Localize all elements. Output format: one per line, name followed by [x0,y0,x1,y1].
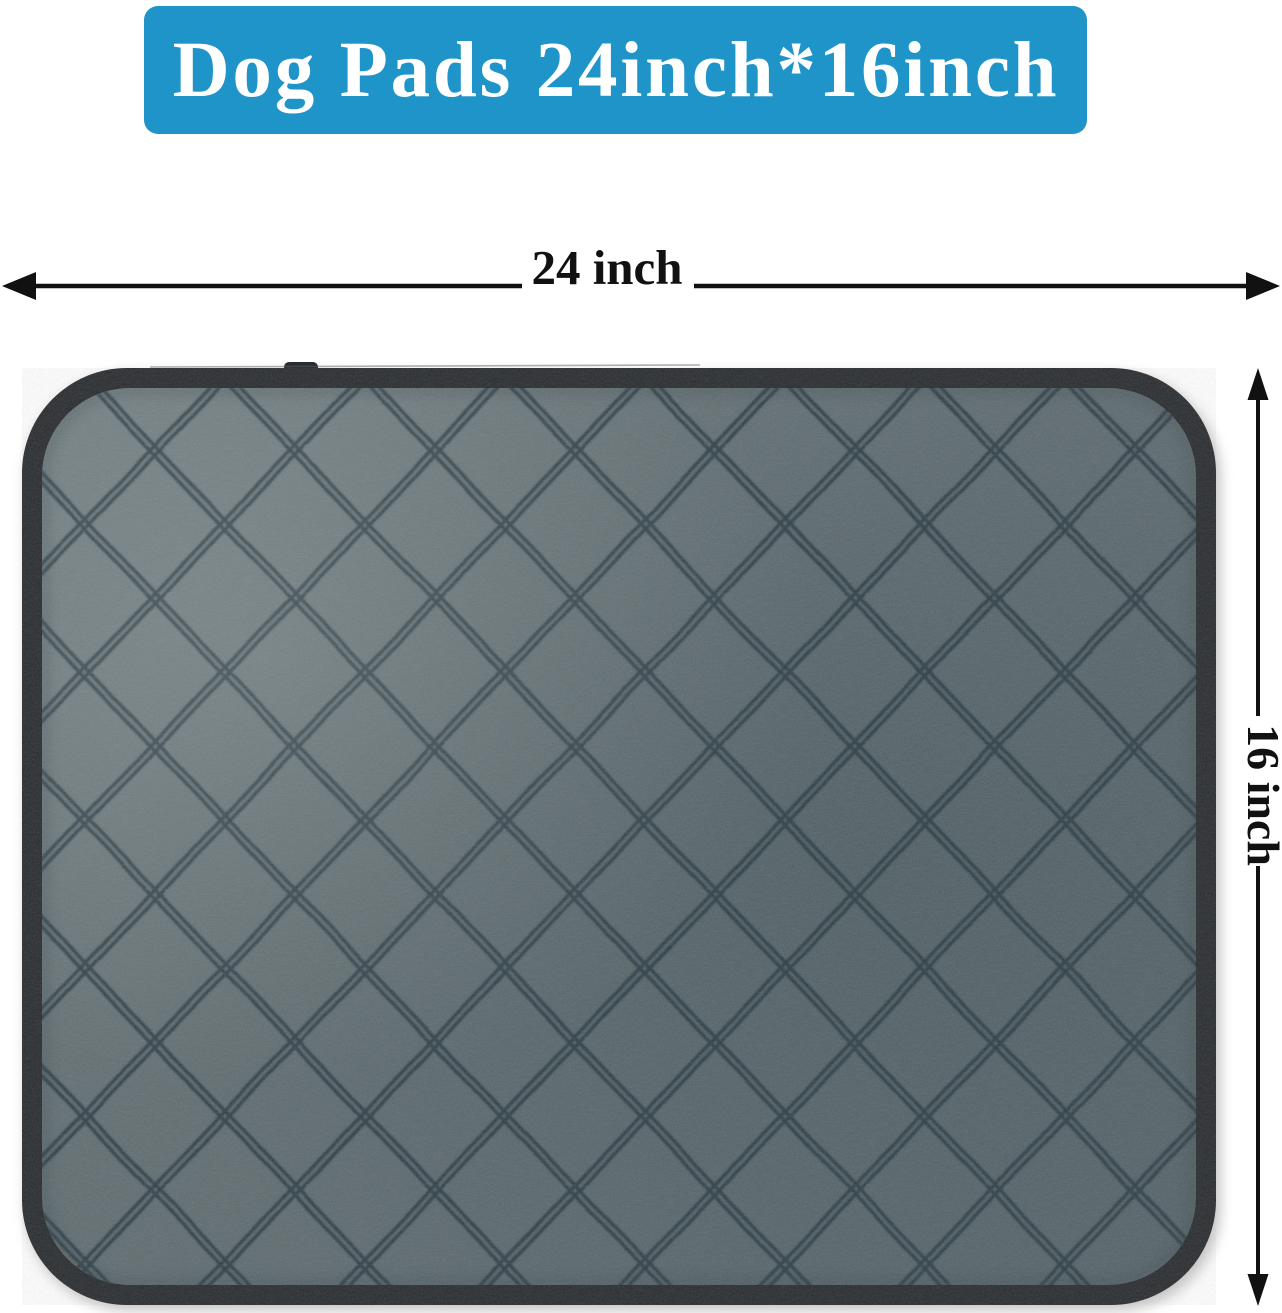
svg-text:24 inch: 24 inch [531,240,682,295]
svg-text:Dog Pads 24inch*16inch: Dog Pads 24inch*16inch [173,27,1060,114]
svg-text:16 inch: 16 inch [1238,724,1282,866]
